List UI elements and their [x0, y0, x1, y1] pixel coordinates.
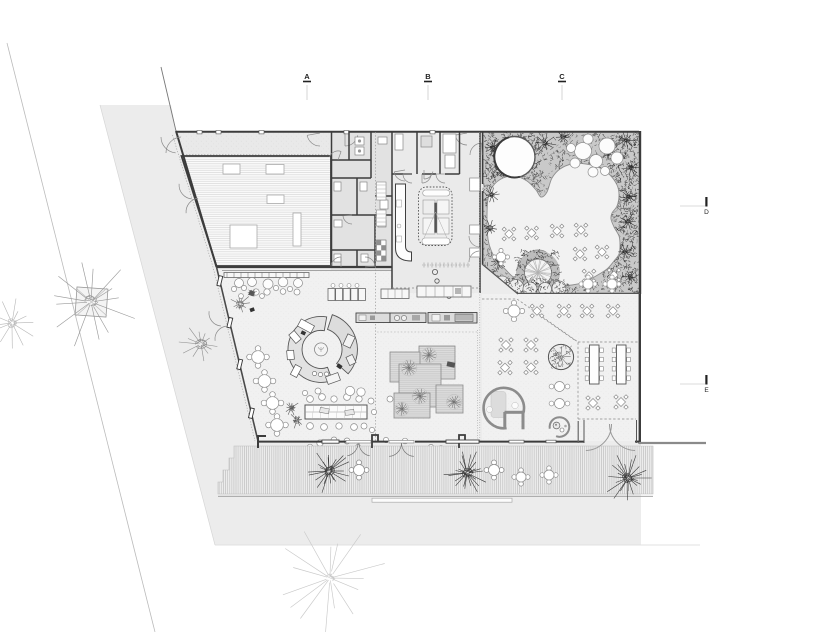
svg-text:D: D: [704, 209, 709, 216]
svg-text:C: C: [559, 72, 565, 81]
svg-text:E: E: [704, 387, 709, 394]
svg-text:A: A: [304, 72, 310, 81]
svg-text:B: B: [425, 72, 431, 81]
